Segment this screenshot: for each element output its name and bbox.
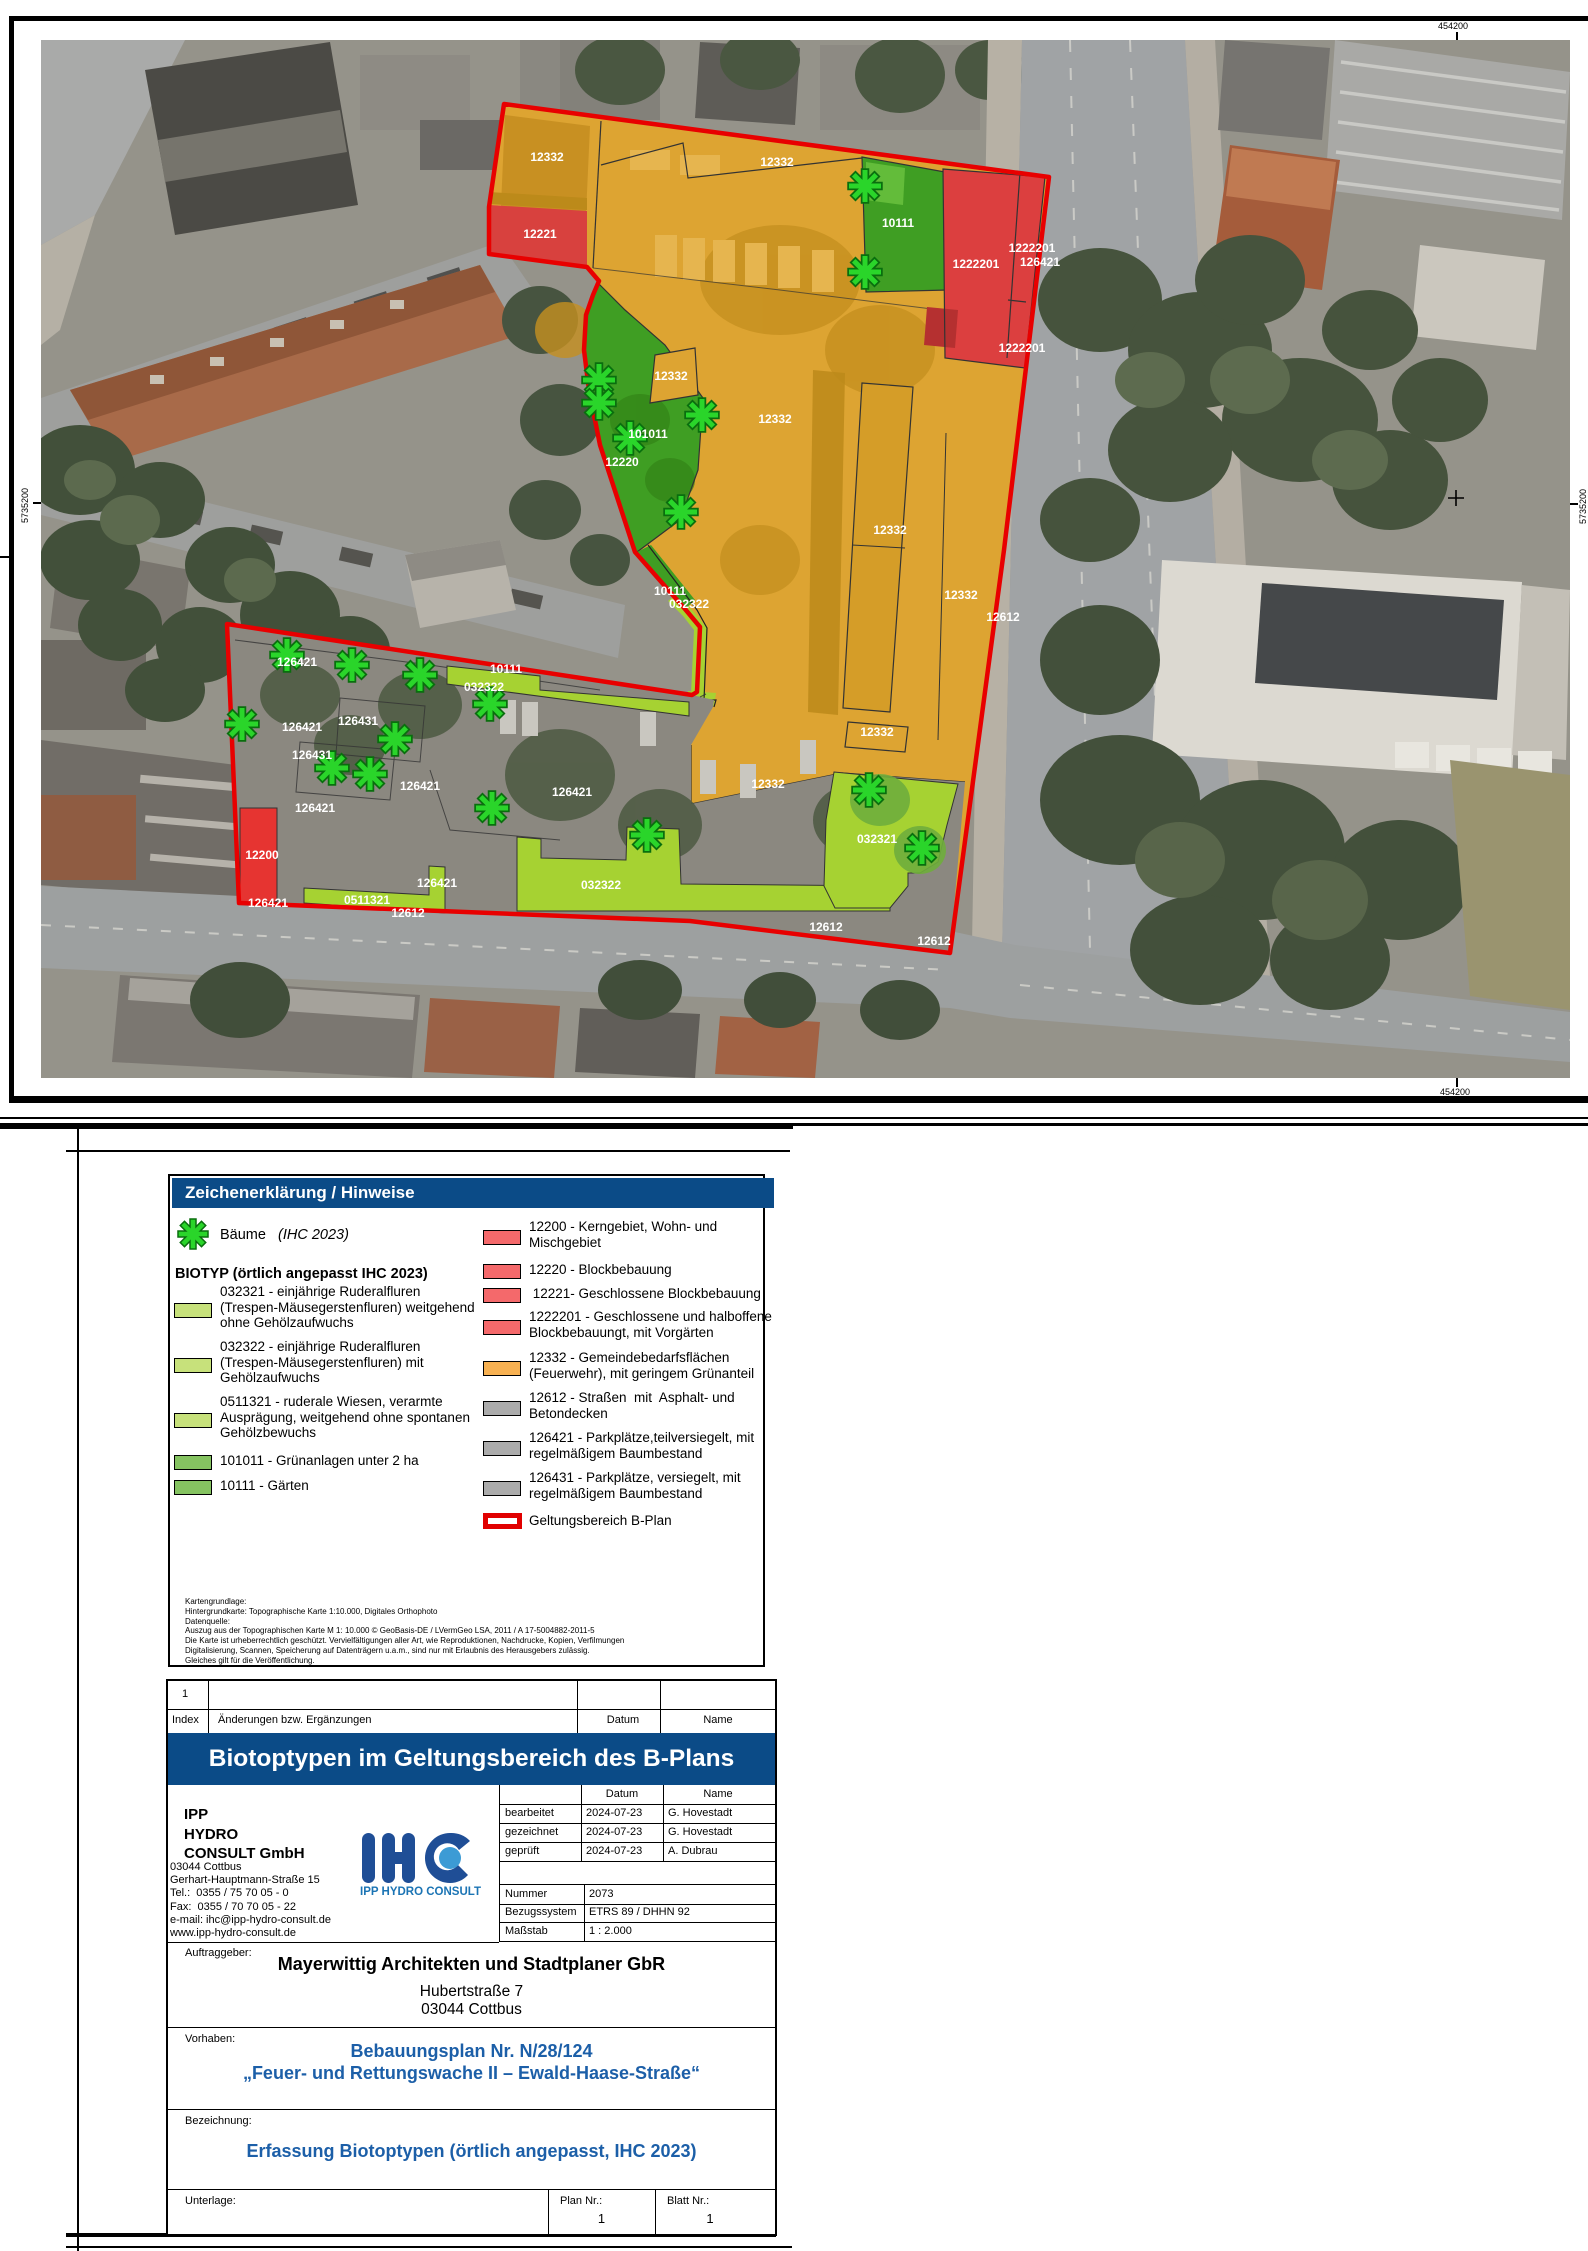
svg-text:126421: 126421 bbox=[552, 785, 592, 799]
svg-text:126421: 126421 bbox=[248, 896, 288, 910]
svg-text:126421: 126421 bbox=[295, 801, 335, 815]
svg-text:126421: 126421 bbox=[417, 876, 457, 890]
svg-text:12220: 12220 bbox=[605, 455, 639, 469]
svg-text:1222201: 1222201 bbox=[1009, 241, 1056, 255]
svg-text:12612: 12612 bbox=[917, 934, 951, 948]
svg-text:1222201: 1222201 bbox=[999, 341, 1046, 355]
svg-text:032321: 032321 bbox=[857, 832, 897, 846]
svg-text:126431: 126431 bbox=[292, 748, 332, 762]
svg-text:126421: 126421 bbox=[277, 655, 317, 669]
svg-text:12612: 12612 bbox=[391, 906, 425, 920]
svg-text:12332: 12332 bbox=[760, 155, 794, 169]
svg-text:12332: 12332 bbox=[654, 369, 688, 383]
svg-text:12612: 12612 bbox=[809, 920, 843, 934]
svg-text:032322: 032322 bbox=[669, 597, 709, 611]
svg-text:032322: 032322 bbox=[464, 680, 504, 694]
svg-text:126421: 126421 bbox=[400, 779, 440, 793]
svg-text:10111: 10111 bbox=[490, 662, 522, 676]
svg-text:12612: 12612 bbox=[986, 610, 1020, 624]
svg-text:IPP HYDRO CONSULT: IPP HYDRO CONSULT bbox=[360, 1886, 481, 1898]
svg-text:101011: 101011 bbox=[628, 427, 668, 441]
svg-text:126421: 126421 bbox=[1020, 255, 1060, 269]
svg-text:0511321: 0511321 bbox=[344, 893, 390, 907]
svg-text:12332: 12332 bbox=[860, 725, 894, 739]
svg-text:12332: 12332 bbox=[873, 523, 907, 537]
svg-text:1222201: 1222201 bbox=[953, 257, 1000, 271]
svg-text:12221: 12221 bbox=[523, 227, 557, 241]
svg-text:12332: 12332 bbox=[751, 777, 785, 791]
svg-text:12332: 12332 bbox=[944, 588, 978, 602]
svg-text:10111: 10111 bbox=[882, 216, 914, 230]
svg-text:126421: 126421 bbox=[282, 720, 322, 734]
svg-text:12332: 12332 bbox=[530, 150, 564, 164]
svg-text:10111: 10111 bbox=[654, 584, 686, 598]
svg-text:12200: 12200 bbox=[245, 848, 279, 862]
svg-text:12332: 12332 bbox=[758, 412, 792, 426]
svg-text:126431: 126431 bbox=[338, 714, 378, 728]
svg-text:032322: 032322 bbox=[581, 878, 621, 892]
